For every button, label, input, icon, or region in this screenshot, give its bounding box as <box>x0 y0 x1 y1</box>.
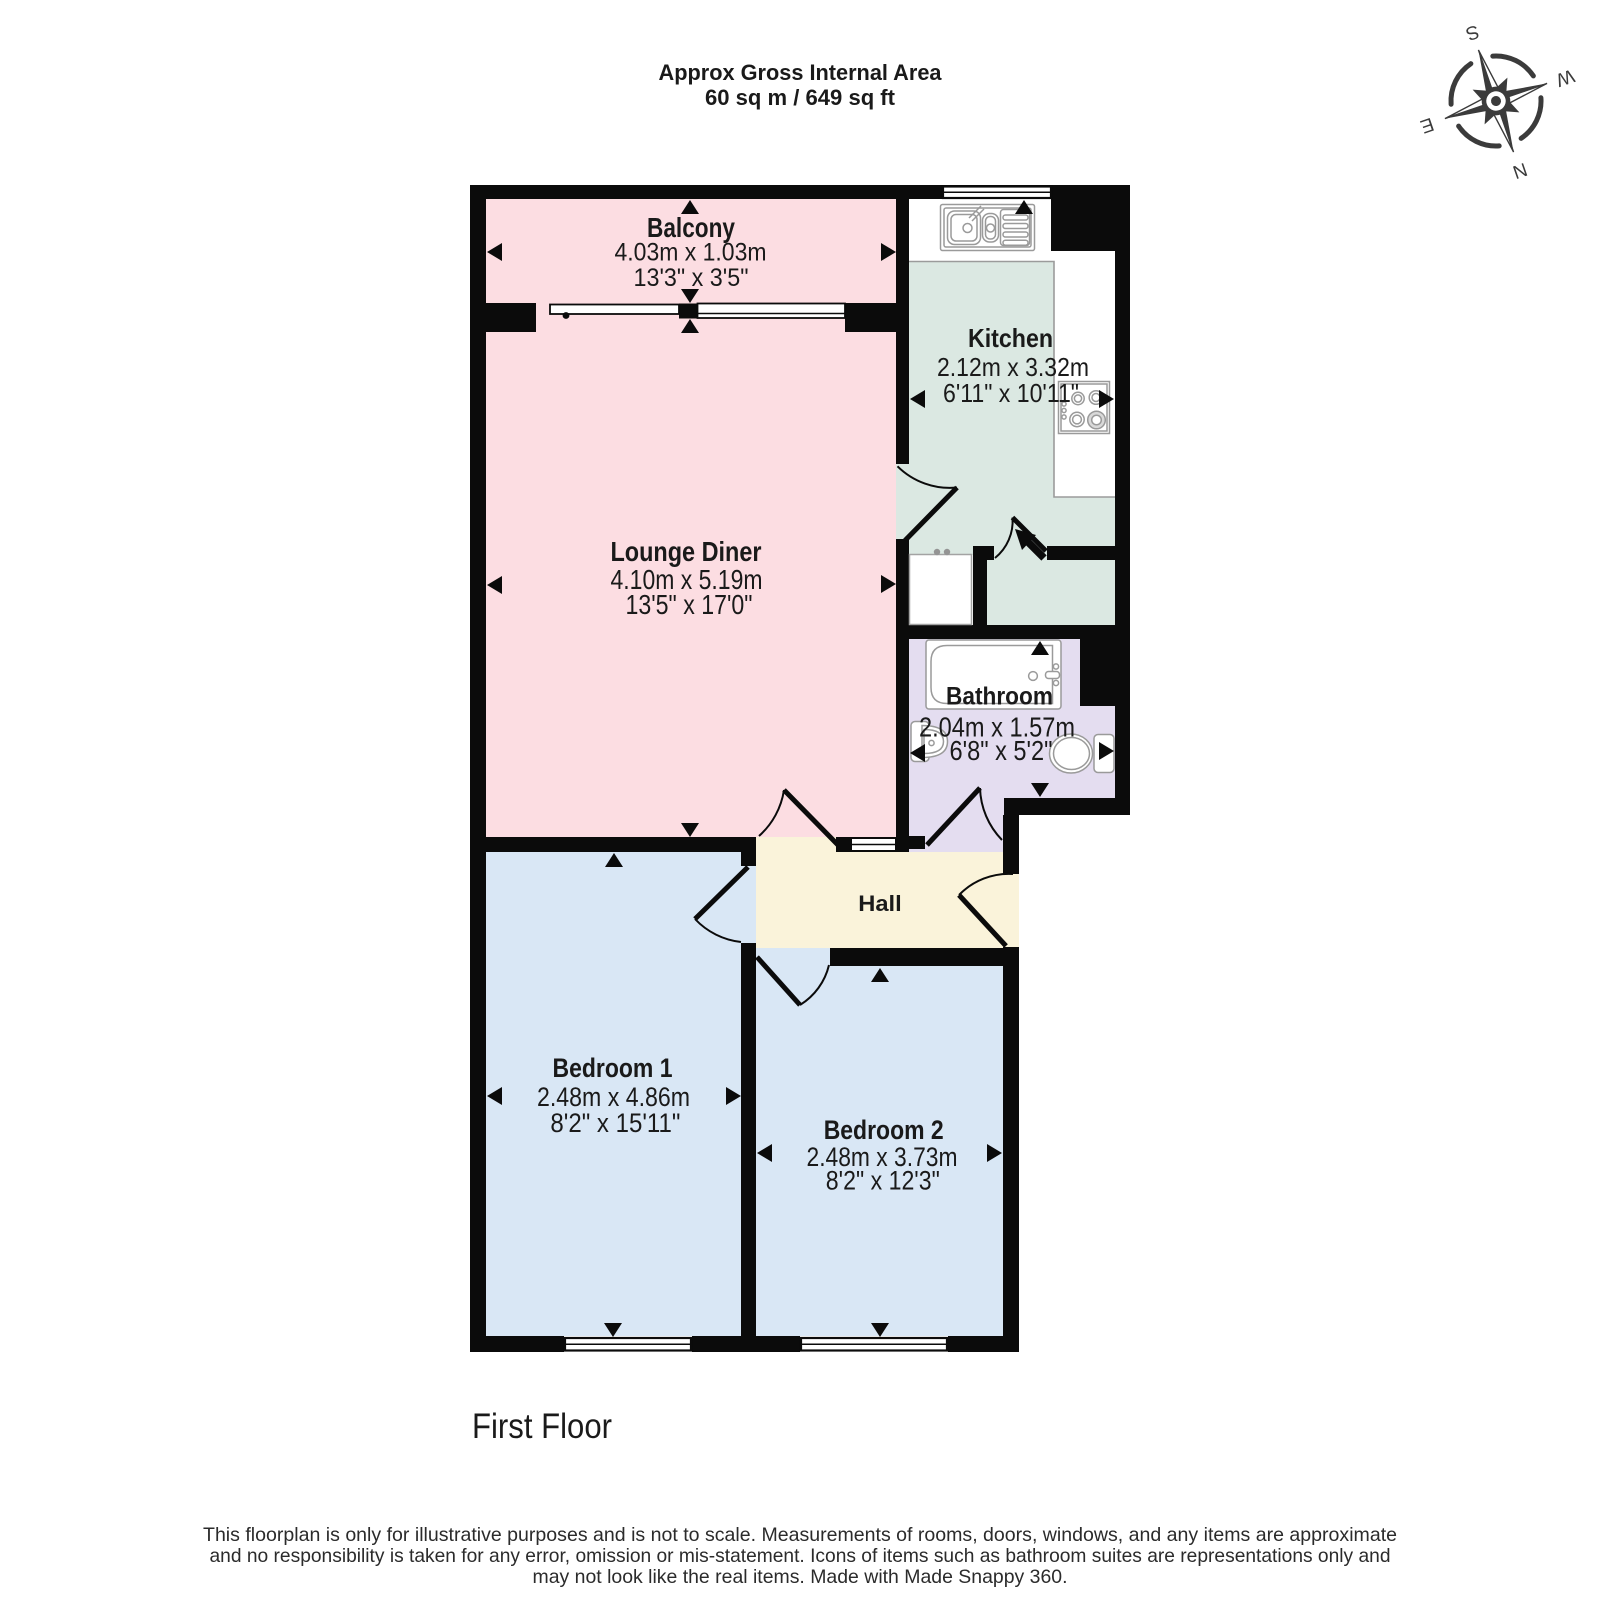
svg-text:may not look like the real ite: may not look like the real items. Made w… <box>533 1566 1068 1588</box>
svg-text:6'11" x 10'11": 6'11" x 10'11" <box>943 378 1079 408</box>
svg-text:Approx Gross Internal Area: Approx Gross Internal Area <box>659 60 943 85</box>
svg-text:Hall: Hall <box>858 891 902 916</box>
svg-text:4.03m x 1.03m: 4.03m x 1.03m <box>615 239 767 267</box>
svg-text:60 sq m / 649 sq ft: 60 sq m / 649 sq ft <box>705 85 896 110</box>
svg-text:Bedroom 2: Bedroom 2 <box>824 1115 944 1145</box>
svg-text:8'2" x 12'3": 8'2" x 12'3" <box>826 1166 940 1196</box>
svg-text:Kitchen: Kitchen <box>968 323 1053 353</box>
svg-text:Lounge Diner: Lounge Diner <box>611 536 762 567</box>
svg-text:13'5" x 17'0": 13'5" x 17'0" <box>626 589 753 620</box>
svg-text:This floorplan is only for ill: This floorplan is only for illustrative … <box>203 1524 1397 1546</box>
svg-text:13'3" x 3'5": 13'3" x 3'5" <box>634 264 749 292</box>
svg-text:Bathroom: Bathroom <box>946 683 1053 711</box>
svg-text:6'8" x 5'2": 6'8" x 5'2" <box>950 735 1053 766</box>
svg-text:8'2" x 15'11": 8'2" x 15'11" <box>550 1108 680 1138</box>
svg-text:First Floor: First Floor <box>472 1407 612 1446</box>
svg-text:Bedroom 1: Bedroom 1 <box>553 1053 673 1083</box>
svg-text:and no responsibility is taken: and no responsibility is taken for any e… <box>210 1545 1391 1567</box>
